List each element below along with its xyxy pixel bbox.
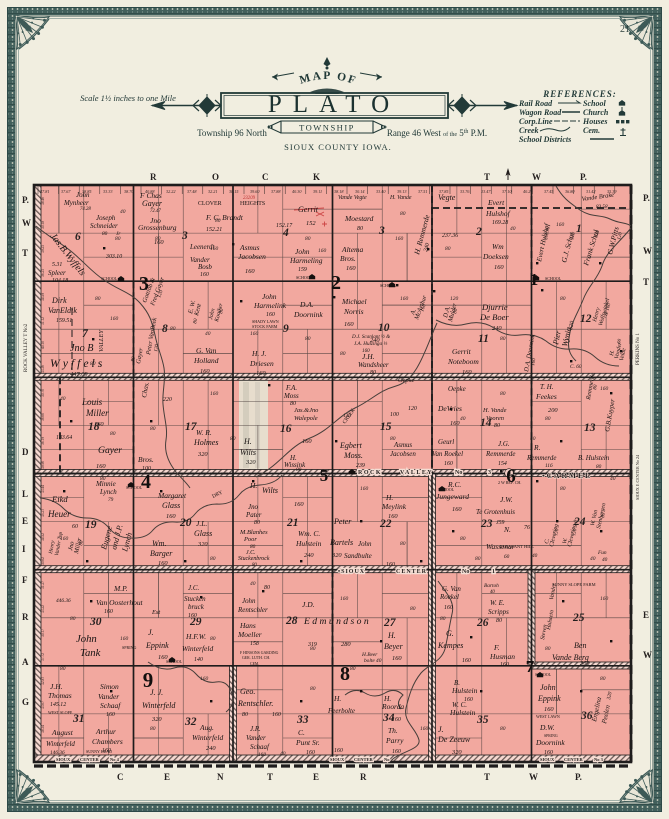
svg-text:160: 160 bbox=[392, 749, 401, 755]
svg-text:John: John bbox=[540, 683, 556, 692]
svg-text:32.21: 32.21 bbox=[208, 189, 217, 194]
svg-text:25: 25 bbox=[572, 612, 585, 624]
svg-text:ROCK VALLEY T No2: ROCK VALLEY T No2 bbox=[24, 323, 29, 372]
svg-text:Scale 1½ inches to one Mile: Scale 1½ inches to one Mile bbox=[80, 93, 176, 103]
svg-text:80: 80 bbox=[560, 296, 566, 302]
svg-text:160: 160 bbox=[120, 636, 129, 642]
svg-text:DeVries: DeVries bbox=[437, 404, 462, 413]
svg-text:No 4: No 4 bbox=[110, 757, 120, 762]
svg-text:PLEASANT HILL: PLEASANT HILL bbox=[500, 544, 534, 549]
svg-text:ROCK: ROCK bbox=[358, 470, 382, 476]
svg-text:SUNNY SLOPE FARM: SUNNY SLOPE FARM bbox=[552, 582, 596, 587]
svg-text:30.14: 30.14 bbox=[355, 189, 364, 194]
svg-text:Remmerde: Remmerde bbox=[526, 454, 556, 462]
svg-text:37.48: 37.48 bbox=[187, 189, 197, 194]
svg-text:160: 160 bbox=[102, 748, 111, 754]
svg-text:160: 160 bbox=[544, 706, 554, 713]
svg-text:146.36: 146.36 bbox=[50, 749, 65, 756]
svg-text:Dirk: Dirk bbox=[51, 296, 67, 305]
svg-text:Th.: Th. bbox=[388, 726, 398, 735]
svg-text:L: L bbox=[22, 489, 28, 499]
svg-text:5.31: 5.31 bbox=[52, 262, 62, 268]
svg-text:160: 160 bbox=[200, 272, 209, 278]
svg-text:38.15: 38.15 bbox=[229, 189, 238, 194]
svg-text:159: 159 bbox=[298, 267, 307, 273]
svg-text:80: 80 bbox=[242, 712, 248, 718]
svg-text:Beyer: Beyer bbox=[384, 642, 404, 651]
svg-text:D.A.: D.A. bbox=[299, 300, 314, 309]
svg-text:31.12: 31.12 bbox=[41, 317, 45, 325]
svg-text:80: 80 bbox=[305, 336, 311, 342]
svg-text:Range 46 West of the 5th P.M.: Range 46 West of the 5th P.M. bbox=[387, 128, 487, 138]
svg-text:36.19: 36.19 bbox=[41, 437, 45, 445]
svg-text:33.22: 33.22 bbox=[41, 605, 45, 613]
svg-text:J.C.: J.C. bbox=[188, 584, 199, 592]
svg-text:T. H.: T. H. bbox=[540, 383, 554, 391]
svg-text:80: 80 bbox=[296, 467, 302, 473]
svg-text:39.11: 39.11 bbox=[313, 189, 322, 194]
svg-text:37.51: 37.51 bbox=[418, 189, 427, 194]
svg-text:160: 160 bbox=[600, 596, 609, 602]
svg-text:1: 1 bbox=[530, 270, 539, 289]
svg-text:Asmus: Asmus bbox=[239, 243, 260, 252]
svg-text:7: 7 bbox=[526, 657, 535, 676]
svg-text:80: 80 bbox=[370, 370, 376, 376]
svg-text:E: E bbox=[313, 772, 319, 782]
svg-text:H.: H. bbox=[385, 493, 393, 502]
svg-text:40: 40 bbox=[532, 552, 538, 559]
svg-text:33.33: 33.33 bbox=[103, 189, 112, 194]
svg-text:Lynch: Lynch bbox=[99, 488, 117, 496]
svg-text:83.58: 83.58 bbox=[596, 204, 608, 210]
svg-text:Heuer: Heuer bbox=[47, 509, 71, 519]
svg-text:Doornink: Doornink bbox=[293, 310, 323, 319]
svg-text:6: 6 bbox=[506, 466, 516, 487]
svg-text:John: John bbox=[358, 540, 372, 548]
svg-text:160: 160 bbox=[444, 605, 453, 611]
svg-text:160: 160 bbox=[302, 438, 312, 445]
svg-text:30.18: 30.18 bbox=[41, 221, 45, 229]
svg-text:38.34: 38.34 bbox=[41, 725, 45, 733]
svg-text:240: 240 bbox=[304, 552, 314, 559]
svg-text:40: 40 bbox=[430, 695, 436, 702]
svg-text:79: 79 bbox=[108, 497, 114, 503]
svg-text:J.G.: J.G. bbox=[498, 440, 510, 448]
svg-text:Winterfeld: Winterfeld bbox=[192, 733, 223, 742]
svg-text:80: 80 bbox=[475, 556, 481, 562]
svg-text:33: 33 bbox=[296, 714, 309, 726]
svg-text:27: 27 bbox=[383, 617, 397, 629]
svg-text:Jas.&Jno: Jas.&Jno bbox=[294, 407, 319, 414]
svg-text:Gayer: Gayer bbox=[142, 199, 163, 208]
svg-text:14: 14 bbox=[480, 417, 492, 429]
svg-text:Oepke: Oepke bbox=[448, 385, 466, 393]
svg-text:80: 80 bbox=[410, 606, 416, 612]
svg-text:160: 160 bbox=[340, 596, 349, 602]
svg-text:No: No bbox=[462, 569, 469, 575]
svg-text:Church: Church bbox=[583, 108, 609, 117]
svg-text:80: 80 bbox=[60, 666, 66, 672]
svg-text:Van Roekel: Van Roekel bbox=[432, 450, 463, 458]
svg-text:38.18: 38.18 bbox=[334, 189, 344, 194]
svg-text:8: 8 bbox=[340, 663, 350, 685]
svg-text:40: 40 bbox=[490, 590, 495, 595]
svg-text:40.20: 40.20 bbox=[523, 189, 533, 194]
svg-text:Gerrit: Gerrit bbox=[452, 347, 472, 356]
svg-text:Meylink: Meylink bbox=[381, 502, 407, 511]
svg-text:5: 5 bbox=[320, 466, 329, 485]
svg-text:40.30: 40.30 bbox=[292, 189, 302, 194]
svg-text:K: K bbox=[313, 172, 320, 182]
svg-text:Schneider: Schneider bbox=[90, 222, 118, 230]
svg-text:160: 160 bbox=[258, 752, 266, 758]
svg-text:40: 40 bbox=[602, 556, 608, 563]
svg-text:Harmelink: Harmelink bbox=[253, 301, 287, 310]
svg-text:John: John bbox=[262, 292, 277, 301]
svg-text:Hulstein: Hulstein bbox=[449, 708, 476, 717]
svg-text:80: 80 bbox=[150, 426, 156, 432]
svg-text:160: 160 bbox=[104, 609, 113, 615]
svg-text:SCHOOL: SCHOOL bbox=[296, 275, 313, 280]
svg-text:160: 160 bbox=[245, 268, 255, 275]
svg-text:160: 160 bbox=[272, 712, 281, 718]
svg-text:80: 80 bbox=[560, 486, 566, 492]
svg-text:80: 80 bbox=[357, 226, 363, 232]
svg-text:Glass: Glass bbox=[194, 529, 212, 538]
svg-text:17: 17 bbox=[185, 421, 198, 433]
svg-text:Bartoh: Bartoh bbox=[484, 583, 499, 589]
svg-text:220: 220 bbox=[163, 397, 172, 403]
svg-text:Township 96 North: Township 96 North bbox=[197, 128, 267, 138]
svg-text:Stuckenbrock: Stuckenbrock bbox=[238, 556, 270, 562]
svg-text:40: 40 bbox=[280, 750, 286, 757]
svg-text:80: 80 bbox=[500, 336, 506, 342]
svg-text:200: 200 bbox=[548, 407, 558, 414]
svg-text:Poor: Poor bbox=[243, 536, 257, 543]
svg-text:F.: F. bbox=[493, 643, 500, 652]
svg-text:Hulshof: Hulshof bbox=[485, 209, 511, 218]
svg-text:T: T bbox=[484, 172, 490, 182]
svg-text:Mynheer: Mynheer bbox=[63, 199, 89, 207]
svg-text:M.Blanhes: M.Blanhes bbox=[239, 529, 268, 536]
svg-text:E: E bbox=[643, 610, 649, 620]
svg-text:No 3: No 3 bbox=[594, 757, 604, 762]
svg-text:Egbert: Egbert bbox=[339, 441, 363, 450]
svg-text:23: 23 bbox=[480, 518, 493, 530]
svg-text:H.: H. bbox=[387, 631, 396, 640]
svg-text:80: 80 bbox=[400, 211, 406, 217]
svg-text:W: W bbox=[532, 172, 541, 182]
svg-text:40.10: 40.10 bbox=[41, 341, 45, 349]
svg-text:Roekel: Roekel bbox=[439, 593, 459, 601]
svg-text:C. 60: C. 60 bbox=[570, 364, 582, 370]
svg-text:160: 160 bbox=[452, 506, 462, 513]
svg-text:WEST SLOPE: WEST SLOPE bbox=[48, 710, 73, 715]
svg-text:160: 160 bbox=[158, 560, 168, 567]
svg-text:152.21: 152.21 bbox=[206, 227, 222, 233]
svg-text:320: 320 bbox=[245, 459, 256, 466]
svg-text:33.44: 33.44 bbox=[41, 485, 45, 493]
svg-text:SIOUX: SIOUX bbox=[56, 757, 71, 762]
svg-text:D.W.: D.W. bbox=[539, 723, 555, 732]
svg-text:Feerbolte: Feerbolte bbox=[327, 707, 355, 715]
svg-text:Wm: Wm bbox=[492, 242, 504, 251]
svg-text:320: 320 bbox=[451, 749, 462, 756]
svg-text:80: 80 bbox=[155, 236, 161, 242]
svg-text:Holmes: Holmes bbox=[193, 438, 219, 447]
svg-text:Eppink: Eppink bbox=[145, 641, 169, 650]
svg-text:120: 120 bbox=[343, 413, 351, 419]
svg-text:SIOUX E CENTER No 24: SIOUX E CENTER No 24 bbox=[635, 454, 640, 500]
svg-text:N.: N. bbox=[503, 525, 511, 534]
svg-text:33.76: 33.76 bbox=[460, 189, 470, 194]
svg-text:80: 80 bbox=[596, 464, 602, 470]
svg-text:J.D.: J.D. bbox=[302, 600, 315, 609]
svg-text:160: 160 bbox=[266, 312, 275, 318]
svg-text:bolte 40: bolte 40 bbox=[364, 657, 382, 664]
svg-text:CEM.: CEM. bbox=[250, 662, 259, 666]
svg-text:160: 160 bbox=[210, 391, 219, 397]
svg-text:36.23: 36.23 bbox=[41, 269, 45, 277]
svg-text:School Districts: School Districts bbox=[519, 135, 571, 144]
svg-text:W: W bbox=[643, 246, 652, 256]
svg-text:Tank: Tank bbox=[80, 647, 101, 659]
svg-text:21: 21 bbox=[286, 517, 299, 529]
svg-text:80: 80 bbox=[102, 231, 108, 237]
svg-text:37.67: 37.67 bbox=[61, 189, 71, 194]
svg-text:39.90: 39.90 bbox=[41, 461, 45, 469]
svg-text:160: 160 bbox=[392, 655, 402, 662]
svg-text:80: 80 bbox=[252, 563, 257, 568]
svg-text:39.23: 39.23 bbox=[41, 245, 45, 253]
svg-text:30.17: 30.17 bbox=[41, 629, 45, 637]
svg-text:80: 80 bbox=[310, 686, 316, 692]
svg-text:80: 80 bbox=[600, 676, 606, 682]
svg-text:Ben: Ben bbox=[574, 641, 586, 650]
svg-text:bruck: bruck bbox=[188, 603, 205, 611]
svg-text:T: T bbox=[267, 772, 273, 782]
svg-text:80: 80 bbox=[440, 616, 446, 622]
svg-text:B. Hulstein: B. Hulstein bbox=[578, 454, 610, 462]
svg-text:160: 160 bbox=[400, 296, 409, 302]
svg-text:Kempes: Kempes bbox=[437, 641, 463, 650]
svg-text:Bros.: Bros. bbox=[138, 455, 154, 464]
svg-text:Jacobsen: Jacobsen bbox=[390, 450, 416, 458]
svg-text:37.88: 37.88 bbox=[271, 189, 281, 194]
svg-text:280: 280 bbox=[341, 641, 351, 648]
svg-text:Hulstein: Hulstein bbox=[295, 539, 322, 548]
svg-text:31.27: 31.27 bbox=[41, 581, 45, 589]
svg-text:20: 20 bbox=[179, 517, 192, 529]
svg-text:16: 16 bbox=[280, 423, 292, 435]
svg-text:160: 160 bbox=[386, 562, 395, 568]
svg-text:Thomas: Thomas bbox=[48, 691, 72, 700]
svg-text:Van Oosterhout: Van Oosterhout bbox=[96, 598, 144, 607]
svg-text:R: R bbox=[22, 612, 29, 622]
svg-text:Sandbulte: Sandbulte bbox=[344, 552, 372, 560]
svg-text:Peter: Peter bbox=[333, 517, 352, 526]
svg-text:John: John bbox=[242, 597, 256, 605]
svg-text:Hulstein: Hulstein bbox=[451, 686, 478, 695]
svg-text:Moeller: Moeller bbox=[237, 630, 262, 639]
svg-text:Vander: Vander bbox=[246, 734, 266, 742]
svg-text:80: 80 bbox=[254, 520, 260, 526]
svg-text:Wm.: Wm. bbox=[152, 539, 166, 548]
svg-text:21: 21 bbox=[620, 24, 630, 35]
svg-text:Harmeling: Harmeling bbox=[289, 256, 323, 265]
svg-text:G.: G. bbox=[446, 629, 454, 638]
svg-text:24: 24 bbox=[573, 516, 586, 528]
svg-text:REFERENCES:: REFERENCES: bbox=[542, 89, 617, 99]
svg-text:80: 80 bbox=[310, 646, 316, 652]
svg-text:Wilts: Wilts bbox=[262, 486, 278, 495]
svg-text:D: D bbox=[22, 447, 29, 457]
svg-text:76: 76 bbox=[524, 525, 530, 531]
svg-text:CLOVER: CLOVER bbox=[198, 201, 222, 207]
svg-text:Spleer: Spleer bbox=[48, 269, 66, 277]
svg-text:Vegte: Vegte bbox=[438, 193, 456, 202]
svg-text:F: F bbox=[22, 575, 28, 585]
svg-text:H.F.W.: H.F.W. bbox=[185, 632, 206, 641]
svg-text:160: 160 bbox=[200, 676, 209, 682]
svg-text:Walepole: Walepole bbox=[294, 415, 318, 422]
svg-text:72.47: 72.47 bbox=[150, 209, 161, 214]
svg-text:120: 120 bbox=[408, 406, 417, 412]
svg-text:2: 2 bbox=[331, 272, 341, 294]
svg-text:Miller: Miller bbox=[85, 408, 109, 418]
svg-text:31: 31 bbox=[72, 713, 85, 725]
svg-text:T: T bbox=[643, 277, 649, 287]
svg-text:26: 26 bbox=[476, 617, 489, 629]
svg-text:320: 320 bbox=[331, 552, 342, 559]
svg-text:J.L.: J.L. bbox=[196, 519, 207, 528]
svg-text:160: 160 bbox=[420, 726, 429, 732]
svg-text:80: 80 bbox=[350, 666, 356, 672]
svg-text:J.H.: J.H. bbox=[50, 682, 63, 691]
svg-text:160: 160 bbox=[210, 246, 219, 252]
svg-text:P.: P. bbox=[580, 172, 587, 182]
svg-text:80: 80 bbox=[95, 296, 101, 302]
svg-text:160: 160 bbox=[110, 316, 119, 322]
svg-text:80: 80 bbox=[210, 556, 216, 562]
svg-text:SCHOOL: SCHOOL bbox=[438, 487, 455, 492]
svg-text:160: 160 bbox=[200, 368, 210, 375]
svg-text:160: 160 bbox=[344, 321, 354, 328]
svg-text:Altema: Altema bbox=[341, 245, 363, 254]
svg-text:80: 80 bbox=[150, 726, 156, 732]
svg-text:VALLEY: VALLEY bbox=[98, 329, 105, 352]
svg-text:160: 160 bbox=[318, 248, 327, 254]
svg-text:CENTER: CENTER bbox=[564, 757, 584, 762]
svg-text:TOWNSHIP: TOWNSHIP bbox=[299, 123, 355, 133]
svg-text:H. Vande: H. Vande bbox=[482, 407, 507, 414]
svg-text:J.: J. bbox=[438, 725, 444, 734]
svg-text:104.18: 104.18 bbox=[52, 277, 68, 284]
svg-text:37.81: 37.81 bbox=[40, 189, 49, 194]
svg-text:34.52: 34.52 bbox=[41, 533, 45, 541]
svg-text:Driesen: Driesen bbox=[249, 359, 274, 368]
svg-text:P.: P. bbox=[643, 193, 650, 203]
svg-text:Djurrie: Djurrie bbox=[481, 302, 508, 312]
svg-text:80: 80 bbox=[390, 436, 396, 442]
svg-text:Winterfeld: Winterfeld bbox=[46, 740, 75, 748]
svg-text:183.64: 183.64 bbox=[56, 434, 72, 441]
svg-text:Bartels: Bartels bbox=[330, 538, 353, 547]
svg-text:Norris: Norris bbox=[343, 307, 364, 316]
svg-text:H. J.: H. J. bbox=[251, 349, 266, 358]
svg-text:Bosb: Bosb bbox=[198, 263, 212, 271]
svg-text:Gerrit: Gerrit bbox=[298, 205, 319, 214]
svg-text:Eppink: Eppink bbox=[537, 694, 561, 703]
svg-text:Joseph: Joseph bbox=[96, 214, 116, 222]
svg-text:1: 1 bbox=[492, 569, 495, 575]
svg-text:No: No bbox=[384, 757, 390, 762]
svg-text:F. C. Brandt: F. C. Brandt bbox=[205, 213, 244, 222]
svg-text:32: 32 bbox=[184, 716, 197, 728]
svg-text:447.09: 447.09 bbox=[70, 371, 88, 378]
svg-text:Grossenburg: Grossenburg bbox=[138, 223, 177, 232]
svg-text:360: 360 bbox=[579, 660, 590, 667]
svg-text:18: 18 bbox=[88, 421, 100, 433]
svg-text:O: O bbox=[212, 172, 219, 182]
svg-text:80: 80 bbox=[545, 646, 551, 652]
svg-text:SCHOOL: SCHOOL bbox=[545, 276, 562, 281]
svg-text:R.: R. bbox=[533, 443, 541, 452]
svg-text:J.R.: J.R. bbox=[250, 725, 261, 733]
svg-text:80: 80 bbox=[496, 618, 502, 624]
svg-text:240: 240 bbox=[370, 337, 380, 344]
svg-text:11: 11 bbox=[478, 333, 489, 345]
svg-text:15: 15 bbox=[380, 421, 392, 433]
svg-text:Te Grotenhuis: Te Grotenhuis bbox=[476, 508, 515, 516]
svg-text:40: 40 bbox=[460, 415, 466, 422]
svg-text:E: E bbox=[22, 516, 28, 526]
svg-text:SCHOOL: SCHOOL bbox=[166, 659, 183, 664]
svg-text:Vander: Vander bbox=[98, 692, 119, 701]
svg-text:Aug.: Aug. bbox=[199, 723, 214, 732]
svg-text:Moss: Moss bbox=[283, 392, 299, 400]
svg-text:160: 160 bbox=[166, 513, 176, 520]
svg-text:PERKINS No 1: PERKINS No 1 bbox=[636, 333, 641, 365]
svg-text:De Boer: De Boer bbox=[479, 312, 509, 322]
svg-text:13: 13 bbox=[584, 422, 596, 434]
svg-text:160: 160 bbox=[60, 536, 69, 542]
svg-text:9: 9 bbox=[283, 323, 289, 335]
svg-text:H. Vande: H. Vande bbox=[389, 195, 412, 201]
svg-text:Creek: Creek bbox=[519, 126, 539, 135]
svg-text:3: 3 bbox=[378, 225, 385, 237]
svg-text:80: 80 bbox=[100, 476, 106, 482]
svg-text:80: 80 bbox=[110, 431, 116, 437]
svg-text:40: 40 bbox=[120, 208, 126, 215]
svg-text:Rentschler: Rentschler bbox=[237, 606, 268, 614]
svg-text:SIOUX: SIOUX bbox=[540, 757, 555, 762]
svg-text:CENTER: CENTER bbox=[80, 757, 100, 762]
svg-text:80: 80 bbox=[230, 436, 236, 442]
svg-text:38.46: 38.46 bbox=[41, 197, 45, 205]
svg-text:No: No bbox=[455, 470, 462, 476]
svg-text:SPRING: SPRING bbox=[122, 645, 136, 650]
svg-text:160: 160 bbox=[462, 369, 472, 376]
svg-text:60: 60 bbox=[504, 554, 510, 560]
svg-text:160: 160 bbox=[306, 750, 315, 756]
svg-text:Roorda: Roorda bbox=[381, 702, 404, 711]
svg-text:John: John bbox=[76, 633, 97, 645]
svg-text:29: 29 bbox=[189, 616, 202, 628]
svg-text:30.62: 30.62 bbox=[41, 557, 45, 565]
svg-text:40: 40 bbox=[590, 555, 596, 562]
svg-text:Chambers: Chambers bbox=[92, 737, 123, 746]
